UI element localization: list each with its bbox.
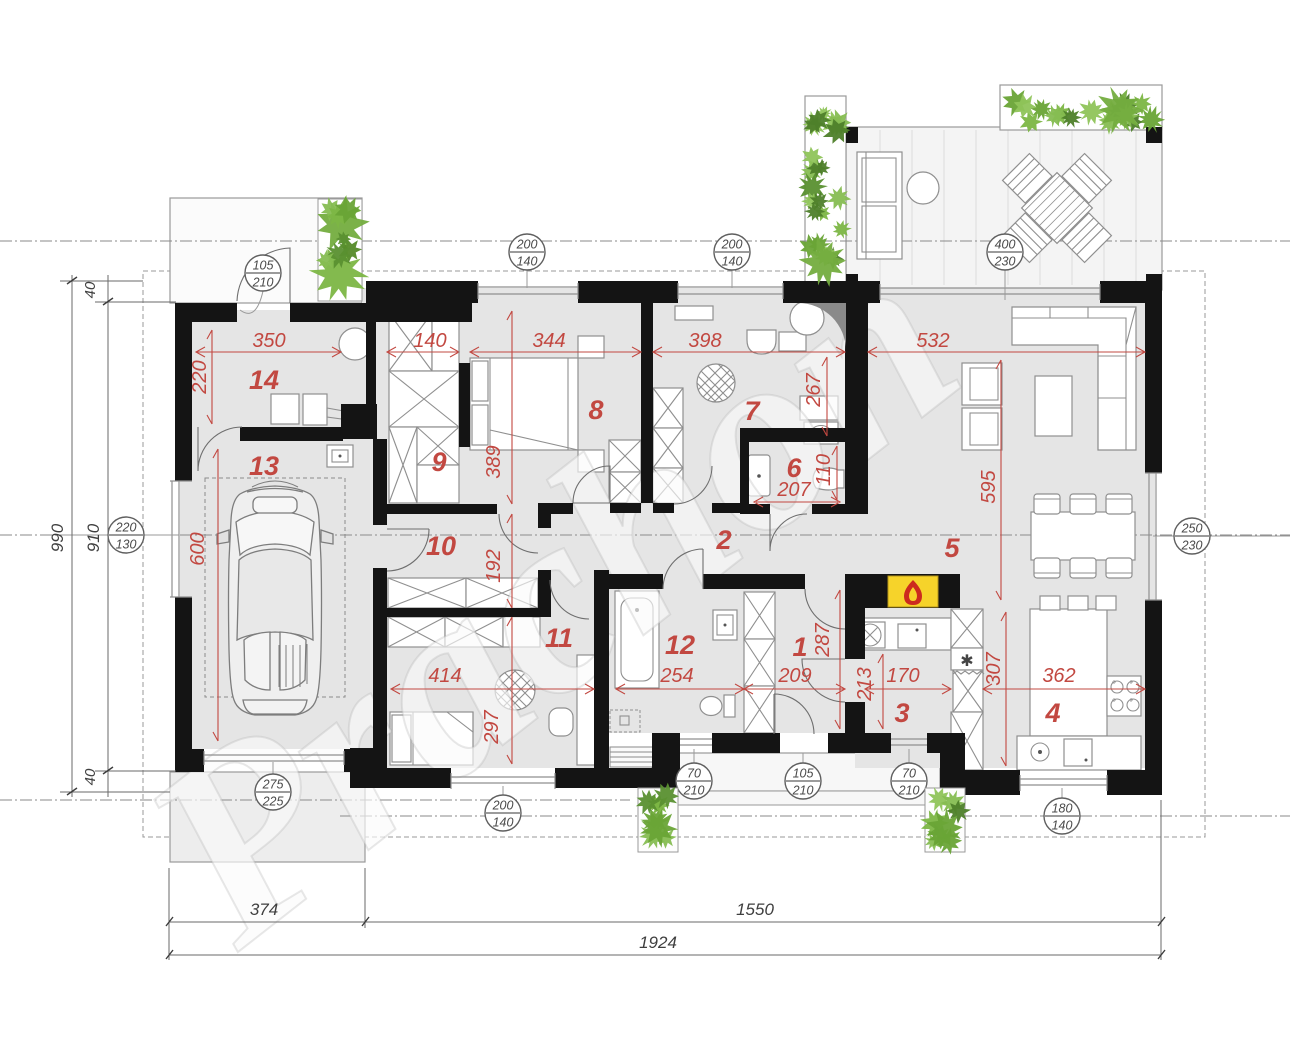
svg-text:140: 140 — [413, 330, 446, 352]
svg-text:3: 3 — [894, 698, 909, 728]
svg-text:209: 209 — [777, 665, 811, 687]
svg-text:8: 8 — [588, 395, 603, 425]
svg-text:287: 287 — [812, 622, 834, 657]
svg-text:532: 532 — [916, 330, 949, 352]
svg-text:250: 250 — [1181, 522, 1203, 536]
svg-text:4: 4 — [1044, 698, 1060, 728]
svg-text:230: 230 — [1181, 539, 1203, 553]
svg-text:910: 910 — [84, 523, 103, 552]
svg-text:40: 40 — [82, 768, 99, 785]
svg-text:210: 210 — [683, 784, 705, 798]
svg-text:220: 220 — [115, 521, 137, 535]
svg-text:267: 267 — [803, 372, 825, 407]
svg-text:210: 210 — [252, 276, 274, 290]
svg-text:140: 140 — [1052, 819, 1073, 833]
svg-text:1550: 1550 — [736, 900, 774, 919]
svg-text:14: 14 — [249, 365, 279, 395]
svg-text:400: 400 — [995, 238, 1016, 252]
svg-text:140: 140 — [517, 255, 538, 269]
svg-text:70: 70 — [687, 767, 701, 781]
svg-text:140: 140 — [493, 816, 514, 830]
svg-text:✱: ✱ — [960, 653, 973, 670]
svg-text:307: 307 — [983, 651, 1005, 685]
svg-text:140: 140 — [722, 255, 743, 269]
svg-text:1924: 1924 — [639, 933, 677, 952]
svg-text:192: 192 — [483, 549, 505, 582]
svg-text:414: 414 — [428, 665, 461, 687]
svg-text:297: 297 — [481, 709, 503, 744]
svg-text:362: 362 — [1042, 665, 1075, 687]
svg-text:600: 600 — [187, 532, 209, 565]
svg-text:230: 230 — [994, 255, 1016, 269]
svg-text:398: 398 — [688, 330, 721, 352]
svg-text:350: 350 — [252, 330, 285, 352]
svg-text:40: 40 — [82, 281, 99, 298]
svg-text:595: 595 — [978, 469, 1000, 503]
svg-text:374: 374 — [250, 900, 278, 919]
svg-text:10: 10 — [426, 531, 456, 561]
svg-text:170: 170 — [886, 665, 919, 687]
svg-text:344: 344 — [532, 330, 565, 352]
svg-text:210: 210 — [792, 784, 814, 798]
svg-text:11: 11 — [545, 623, 573, 653]
svg-text:990: 990 — [48, 523, 67, 552]
svg-text:207: 207 — [776, 479, 811, 501]
svg-text:110: 110 — [813, 454, 835, 486]
svg-text:225: 225 — [262, 795, 284, 809]
svg-text:200: 200 — [721, 238, 743, 252]
svg-text:200: 200 — [516, 238, 538, 252]
svg-text:130: 130 — [116, 538, 137, 552]
svg-text:12: 12 — [665, 630, 695, 660]
svg-text:9: 9 — [431, 447, 446, 477]
svg-text:220: 220 — [189, 360, 211, 394]
svg-text:5: 5 — [944, 533, 960, 563]
svg-text:70: 70 — [902, 767, 916, 781]
svg-text:210: 210 — [898, 784, 920, 798]
svg-text:105: 105 — [253, 259, 274, 273]
svg-text:2: 2 — [715, 525, 731, 555]
svg-text:180: 180 — [1052, 802, 1073, 816]
svg-text:275: 275 — [262, 778, 284, 792]
svg-text:389: 389 — [483, 445, 505, 478]
svg-text:1: 1 — [792, 632, 807, 662]
svg-text:254: 254 — [659, 665, 693, 687]
svg-text:105: 105 — [793, 767, 814, 781]
svg-text:13: 13 — [249, 451, 279, 481]
svg-text:200: 200 — [492, 799, 514, 813]
svg-text:7: 7 — [744, 396, 761, 426]
